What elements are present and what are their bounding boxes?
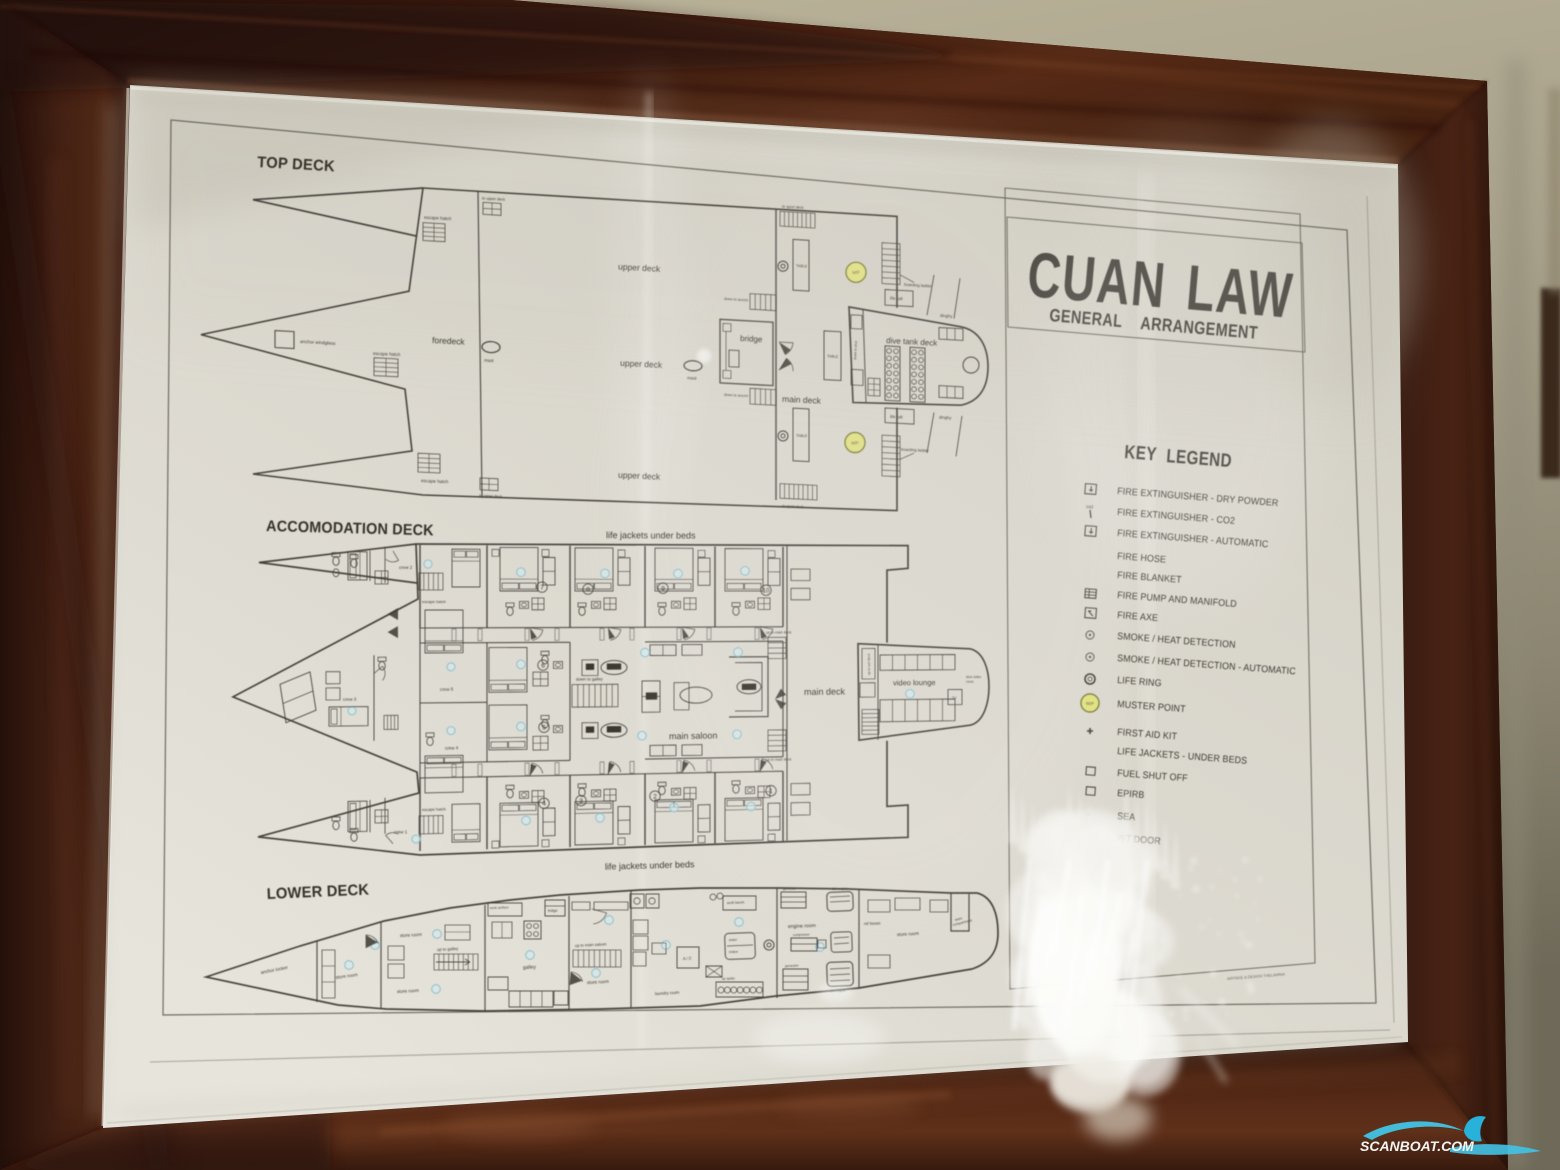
svg-text:SCANBOAT.COM: SCANBOAT.COM: [1360, 1138, 1474, 1154]
svg-text:5: 5: [542, 725, 546, 732]
svg-text:crew 1: crew 1: [394, 829, 408, 834]
svg-text:escape hatch: escape hatch: [422, 599, 446, 604]
svg-text:crew 5: crew 5: [440, 687, 454, 692]
svg-text:compressor: compressor: [793, 932, 811, 937]
svg-text:maker: maker: [729, 950, 739, 954]
svg-text:3: 3: [579, 798, 583, 805]
svg-text:water: water: [729, 938, 738, 942]
svg-text:fridge: fridge: [548, 909, 558, 913]
svg-text:escape hatch: escape hatch: [422, 806, 446, 812]
svg-text:ref boxes: ref boxes: [864, 920, 881, 926]
svg-text:4: 4: [542, 801, 546, 808]
svg-text:A / C: A / C: [683, 956, 692, 961]
svg-text:generator: generator: [785, 963, 800, 968]
svg-text:crew 4: crew 4: [445, 745, 459, 750]
svg-text:6: 6: [541, 662, 545, 669]
svg-text:galley: galley: [523, 964, 537, 971]
svg-text:down to galley: down to galley: [576, 676, 604, 681]
svg-text:7: 7: [540, 584, 544, 591]
svg-text:work surface: work surface: [490, 905, 509, 910]
svg-text:air tanks: air tanks: [722, 976, 735, 981]
svg-text:crew 2: crew 2: [399, 565, 413, 570]
svg-text:work bench: work bench: [727, 900, 745, 905]
svg-text:foredeck: foredeck: [432, 335, 466, 347]
svg-text:engine room: engine room: [788, 923, 816, 930]
svg-text:8: 8: [586, 586, 590, 593]
svg-text:crew 3: crew 3: [343, 697, 357, 702]
svg-text:2: 2: [653, 793, 657, 800]
svg-text:EPIRB: EPIRB: [1117, 788, 1145, 800]
svg-text:mast: mast: [484, 358, 495, 364]
